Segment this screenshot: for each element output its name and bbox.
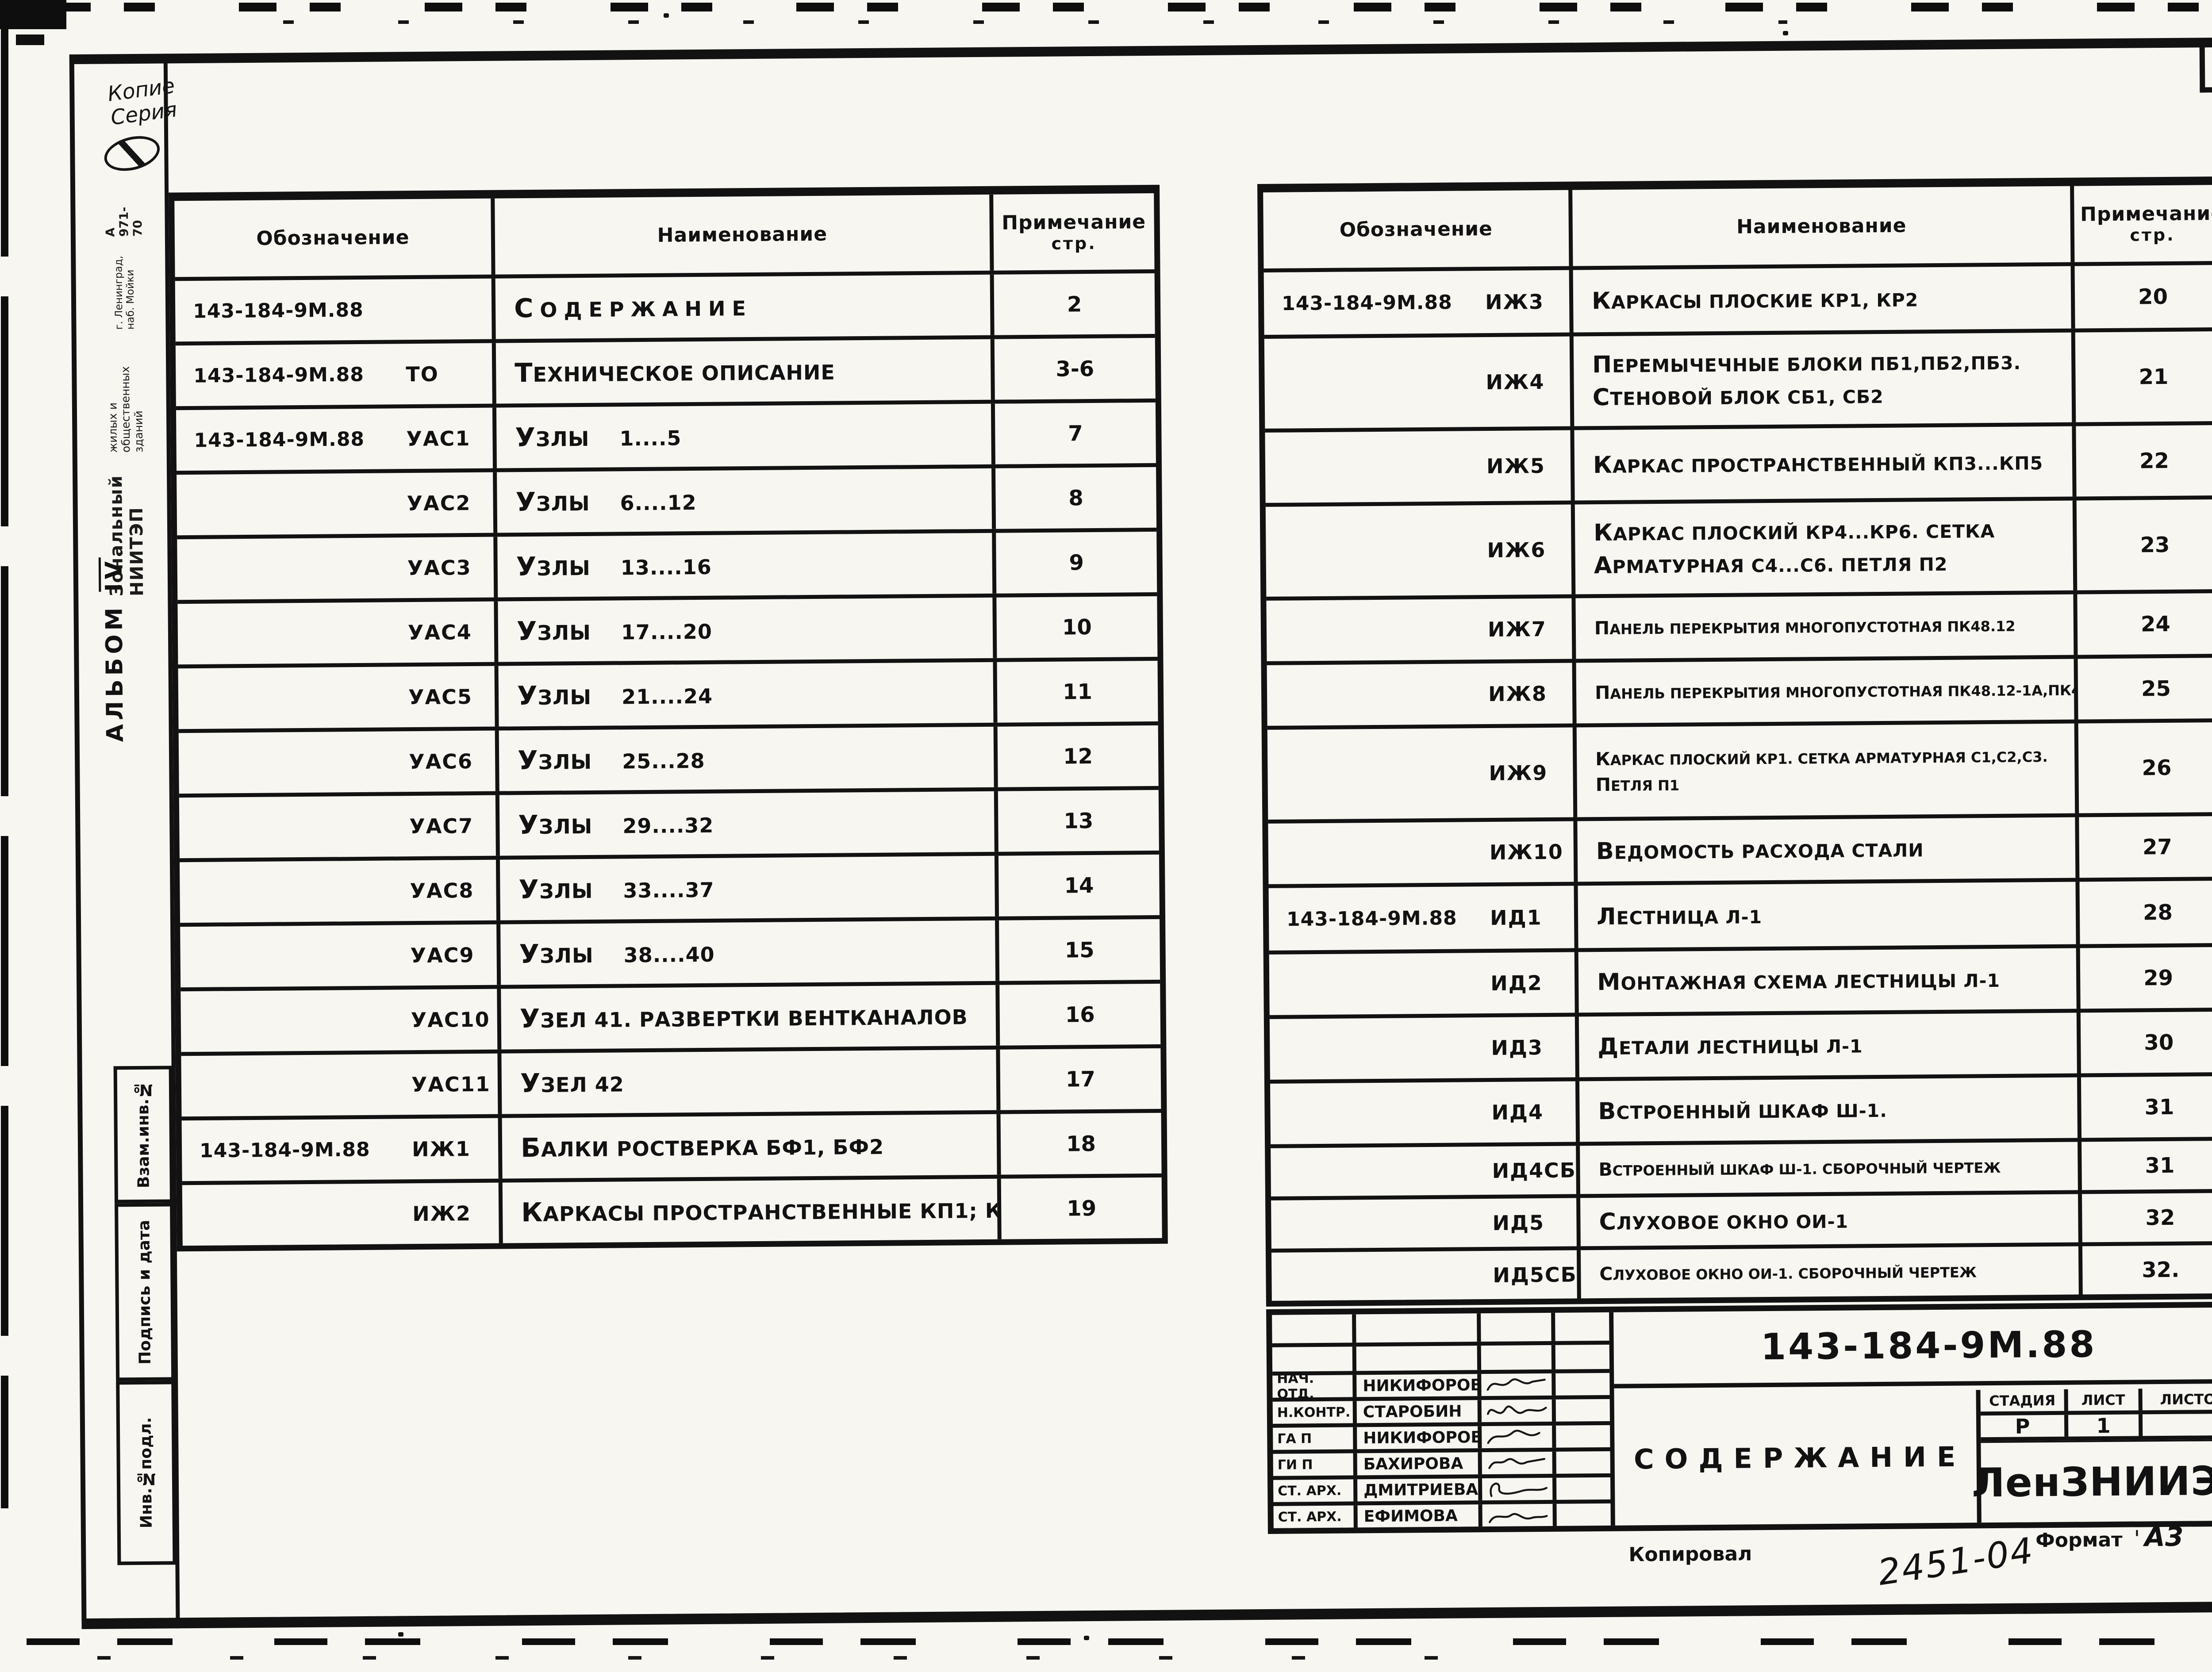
signature-mark — [1486, 1453, 1548, 1473]
designation-cell: УАС10 — [180, 989, 497, 1052]
staff-date-cell — [1556, 1477, 1610, 1500]
page-cell: 3-6 — [991, 338, 1156, 400]
page-cell: 2 — [990, 273, 1155, 335]
page-cell: 22 — [2072, 425, 2212, 497]
designation-number: 143-184-9М.88 — [193, 363, 364, 387]
designation-cell: ИЖ10 — [1268, 821, 1574, 884]
designation-code: ИЖ3 — [1485, 289, 1544, 314]
table-row: ИЖ10Ведомость расхода стали27 — [1268, 812, 2212, 884]
staff-date-cell — [1556, 1503, 1610, 1526]
table-row: ИЖ5Каркас пространственный КП3...КП522 — [1265, 421, 2212, 503]
designation-code: ИЖ10 — [1490, 840, 1563, 864]
staff-date-cell — [1555, 1373, 1609, 1396]
designation-cell: ИД4 — [1270, 1081, 1576, 1144]
name-line: Узлы 21....24 — [517, 674, 994, 714]
page-cell: 23 — [2073, 499, 2212, 591]
page-cell: 15 — [995, 919, 1160, 981]
staff-row: НАЧ. ОТД.НИКИФОРОВ — [1272, 1369, 1609, 1398]
page-cell: 20 — [2071, 265, 2212, 329]
table-row: УАС6Узлы 25...2812 — [179, 721, 1159, 794]
page-cell: 11 — [993, 661, 1158, 723]
name-line: Техническое описание — [515, 351, 991, 391]
page-cell: 26 — [2074, 722, 2212, 813]
side-cell-vzam-inv: Взам.инв.№ — [114, 1066, 173, 1203]
designation-number: 143-184-9М.88 — [193, 299, 364, 322]
staff-role-cell: НАЧ. ОТД. — [1272, 1375, 1356, 1397]
name-line: Балки ростверка БФ1, БФ2 — [521, 1126, 997, 1166]
designation-code: ИЖ4 — [1486, 369, 1544, 394]
designation-code: ИЖ9 — [1489, 760, 1548, 785]
table-row: УАС11Узел 4217 — [181, 1044, 1161, 1116]
designation-cell: ИЖ8 — [1267, 663, 1573, 726]
table-row: ИЖ8Панель перекрытия многопустотная ПК48… — [1267, 654, 2212, 726]
name-line: Каркас пространственный КП3...КП5 — [1593, 445, 2073, 481]
name-cell: Слуховое окно ОИ-1. Сборочный чертеж — [1577, 1246, 2079, 1299]
staff-role-cell: ГА П — [1273, 1427, 1357, 1450]
header-note-line1: Примечание — [1002, 211, 1146, 234]
name-line: Слуховое окно ОИ-1 — [1599, 1202, 2078, 1238]
designation-code: ИД5СБ — [1493, 1262, 1577, 1287]
name-line: Узлы 13....16 — [516, 545, 992, 585]
designation-number: 143-184-9М.88 — [194, 428, 365, 452]
designation-cell: ИД2 — [1269, 952, 1575, 1015]
designation-number: 143-184-9М.88 — [1286, 907, 1457, 931]
page-cell: 13 — [994, 790, 1159, 852]
side-cell-inv-podl: Инв.№подл. — [116, 1381, 176, 1565]
designation-code: УАС1 — [406, 426, 470, 451]
page-cell: 18 — [997, 1113, 1162, 1175]
stamp-line: А 971-70 — [104, 198, 145, 242]
table-row: УАС4Узлы 17....2010 — [177, 592, 1157, 664]
designation-code: УАС7 — [409, 814, 473, 838]
kopiroval-label: Копировал — [1628, 1542, 1752, 1566]
staff-signature-cell — [1481, 1313, 1555, 1342]
name-cell: Балки ростверка БФ1, БФ2 — [498, 1114, 997, 1179]
designation-number: 143-184-9М.88 — [1282, 291, 1452, 315]
staff-date-cell — [1555, 1345, 1609, 1369]
name-line: Каркас плоский КР1. Сетка арматурная С1,… — [1595, 743, 2074, 772]
designation-cell: ИЖ2 — [182, 1183, 499, 1246]
table-header: Обозначение Наименование Примечание стр. — [174, 193, 1154, 277]
designation-cell: ИД5 — [1271, 1198, 1577, 1248]
designation-code: УАС4 — [408, 620, 472, 644]
header-note-line2: стр. — [2130, 225, 2175, 245]
designation-cell: УАС2 — [177, 472, 493, 536]
name-line: Узлы 33....37 — [518, 868, 995, 908]
table-row: 143-184-9М.88Содержание2 — [175, 269, 1155, 341]
name-cell: Встроенный шкаф Ш-1. — [1575, 1078, 2078, 1142]
staff-role-cell: СТ. АРХ. — [1273, 1479, 1357, 1502]
name-line: Встроенный шкаф Ш-1. Сборочный чертеж — [1598, 1153, 2078, 1182]
doc-number-cell: 143-184-9М.88 — [1613, 1308, 2212, 1388]
name-line: Лестница Л-1 — [1597, 897, 2076, 933]
designation-cell: УАС11 — [181, 1054, 498, 1117]
table-row: 143-184-9М.88ИЖ1Балки ростверка БФ1, БФ2… — [182, 1109, 1162, 1181]
page-cell: 16 — [995, 984, 1160, 1046]
name-line: Узлы 1....5 — [515, 416, 991, 456]
table-row: УАС2Узлы 6....128 — [177, 463, 1156, 535]
header-note: Примечание стр. — [989, 193, 1154, 271]
designation-number: 143-184-9М.88 — [200, 1138, 370, 1162]
name-cell: Монтажная схема лестницы Л-1 — [1575, 948, 2077, 1013]
table-row: ИД4СБВстроенный шкаф Ш-1. Сборочный черт… — [1271, 1137, 2212, 1196]
staff-name-cell: НИКИФОРОВ — [1356, 1374, 1481, 1397]
staff-grid: НАЧ. ОТД.НИКИФОРОВН.КОНТР.СТАРОБИНГА ПНИ… — [1272, 1312, 1615, 1528]
name-cell: Узел 41. Развертки вентканалов — [497, 985, 996, 1050]
page-cell: 19 — [997, 1177, 1162, 1239]
page-cell: 30 — [2077, 1012, 2212, 1074]
name-cell: Каркас плоский КР4...КР6. Сеткаарматурна… — [1571, 501, 2074, 594]
album-label: АЛЬБОМ IV — [85, 508, 144, 791]
stage-header-row: СТАДИЯ ЛИСТ ЛИСТОВ — [1980, 1388, 2212, 1416]
name-line: Узлы 38....40 — [519, 932, 995, 973]
header-name: Наименование — [1568, 186, 2070, 266]
page-cell: 28 — [2075, 881, 2212, 944]
page-cell: 27 — [2075, 816, 2212, 878]
staff-name-cell — [1356, 1313, 1481, 1342]
header-name: Наименование — [491, 195, 990, 275]
staff-signature-cell — [1481, 1345, 1555, 1370]
staff-row: СТ. АРХ.ДМИТРИЕВА — [1273, 1473, 1610, 1502]
designation-cell: УАС6 — [179, 731, 495, 794]
sheets-value — [2143, 1414, 2212, 1436]
name-cell: Панель перекрытия многопустотная ПК48.12 — [1571, 594, 2074, 659]
designation-cell: ИЖ6 — [1266, 505, 1572, 597]
drawing-title-cell: СОДЕРЖАНИЕ — [1614, 1390, 1977, 1525]
staff-signature-cell — [1482, 1452, 1556, 1474]
designation-code: ИЖ2 — [412, 1201, 471, 1226]
staff-role-cell — [1272, 1346, 1356, 1371]
table-row: ИЖ4Перемычечные блоки ПБ1,ПБ2,ПБ3.Стенов… — [1264, 327, 2212, 429]
name-cell: Узлы 6....12 — [493, 468, 992, 533]
header-note-line2: стр. — [1051, 233, 1097, 253]
designation-code: ИЖ6 — [1487, 537, 1546, 562]
format-tick: ' — [2134, 1526, 2140, 1551]
designation-code: УАС11 — [411, 1072, 491, 1096]
table-row: ИД3Детали лестницы Л-130 — [1270, 1008, 2212, 1080]
sheet-value: 1 — [2068, 1414, 2143, 1436]
staff-role-cell — [1272, 1314, 1356, 1343]
name-cell: Лестница Л-1 — [1574, 882, 2076, 948]
stage-sheet-block: СТАДИЯ ЛИСТ ЛИСТОВ Р 1 ЛенЗНИИЭП — [1976, 1388, 2212, 1523]
staff-signature-cell — [1482, 1426, 1556, 1448]
designation-code: УАС2 — [407, 491, 471, 515]
header-designation: Обозначение — [174, 199, 491, 277]
name-cell: Каркас плоский КР1. Сетка арматурная С1,… — [1573, 724, 2075, 817]
name-cell: Узел 42 — [497, 1050, 996, 1114]
name-line: Узлы 6....12 — [515, 480, 992, 521]
format-word: Формат — [2035, 1529, 2123, 1552]
page-cell: 32. — [2078, 1245, 2212, 1295]
table-row: УАС9Узлы 38....4015 — [180, 915, 1160, 987]
name-cell: Техническое описание — [492, 339, 991, 404]
name-cell: Детали лестницы Л-1 — [1575, 1013, 2077, 1078]
stage-value: Р — [1981, 1415, 2068, 1438]
name-cell: Каркас пространственный КП3...КП5 — [1570, 426, 2072, 501]
designation-code: УАС5 — [408, 685, 472, 709]
staff-name-cell: СТАРОБИН — [1357, 1400, 1482, 1423]
staff-row: ГИ ПБАХИРОВА — [1273, 1447, 1610, 1476]
header-note: Примечание стр. — [2070, 185, 2212, 262]
staff-empty-row — [1272, 1312, 1609, 1343]
table-row: ИД5СБСлуховое окно ОИ-1. Сборочный черте… — [1271, 1241, 2212, 1301]
signature-mark — [1486, 1401, 1548, 1421]
name-cell: Каркасы плоские КР1, КР2 — [1569, 266, 2071, 333]
designation-cell: УАС3 — [177, 537, 494, 600]
name-cell: Ведомость расхода стали — [1573, 817, 2075, 882]
staff-row: ГА ПНИКИФОРОВ — [1273, 1421, 1610, 1450]
staff-row: СТ. АРХ.ЕФИМОВА — [1273, 1499, 1610, 1528]
name-line: Каркасы пространственные КП1; КП2 — [521, 1191, 998, 1231]
staff-name-cell: ЕФИМОВА — [1357, 1504, 1482, 1527]
designation-code: ИЖ1 — [412, 1137, 471, 1161]
designation-code: ИД4СБ — [1492, 1158, 1576, 1182]
staff-date-cell — [1556, 1451, 1610, 1474]
sheet-label: ЛИСТ — [2068, 1388, 2142, 1411]
name-cell: Узлы 29....32 — [495, 791, 995, 856]
name-line: Каркас плоский КР4...КР6. Сетка — [1594, 513, 2073, 549]
name-line: Панель перекрытия многопустотная ПК48.12… — [1595, 676, 2074, 706]
designation-code: УАС10 — [411, 1007, 490, 1032]
name-cell: Узлы 38....40 — [496, 920, 995, 985]
page-cell: 12 — [994, 725, 1159, 787]
staff-role-cell: Н.КОНТР. — [1273, 1401, 1357, 1423]
signature-mark — [1486, 1427, 1548, 1447]
name-line: Узлы 25...28 — [518, 739, 994, 779]
page-cell: 7 — [991, 403, 1156, 464]
staff-date-cell — [1556, 1425, 1610, 1448]
page-cell: 8 — [991, 467, 1156, 529]
album-roman-numeral: IV — [101, 557, 128, 591]
designation-code: УАС8 — [410, 878, 474, 903]
name-line: Панель перекрытия многопустотная ПК48.12 — [1594, 612, 2074, 641]
header-note-line1: Примечание — [2080, 202, 2212, 226]
signature-mark — [1486, 1375, 1548, 1395]
name-cell: Встроенный шкаф Ш-1. Сборочный чертеж — [1576, 1142, 2078, 1194]
designation-cell: 143-184-9М.88 — [175, 279, 492, 342]
stage-value-row: Р 1 — [1981, 1414, 2212, 1442]
designation-cell: ИЖ7 — [1266, 598, 1572, 661]
staff-name-cell: ДМИТРИЕВА — [1357, 1478, 1482, 1501]
name-line: Встроенный шкаф Ш-1. — [1598, 1091, 2078, 1127]
signature-mark — [1486, 1479, 1548, 1499]
designation-cell: ИЖ5 — [1265, 430, 1571, 503]
name-line: Перемычечные блоки ПБ1,ПБ2,ПБ3. — [1592, 345, 2072, 381]
signature-mark — [1486, 1505, 1548, 1525]
designation-code: ИД4 — [1491, 1100, 1544, 1124]
name-line: Детали лестницы Л-1 — [1598, 1027, 2077, 1063]
stage-label: СТАДИЯ — [1980, 1389, 2068, 1412]
name-cell: Узлы 1....5 — [492, 404, 991, 468]
table-row: ИД2Монтажная схема лестницы Л-129 — [1269, 943, 2212, 1015]
stamp-line: г. Ленинград, наб. Мойки — [113, 241, 137, 333]
page-cell: 25 — [2074, 658, 2212, 720]
designation-code: УАС9 — [410, 943, 474, 967]
sheet: 2 Копие Серия Зональный НИИТЭП жилых и о… — [0, 0, 2212, 1672]
designation-code: УАС3 — [407, 556, 472, 580]
designation-code: ИД5 — [1492, 1211, 1544, 1235]
page-cell: 31 — [2077, 1076, 2212, 1138]
name-line: Слуховое окно ОИ-1. Сборочный чертеж — [1599, 1258, 2078, 1287]
sheet-number-box: 2 — [2200, 41, 2212, 92]
page-cell: 29 — [2076, 947, 2212, 1009]
table-row: УАС8Узлы 33....3714 — [180, 851, 1160, 923]
page-cell: 14 — [995, 855, 1160, 917]
staff-name-cell: НИКИФОРОВ — [1357, 1426, 1482, 1449]
designation-code: ИЖ7 — [1488, 617, 1547, 641]
staff-role-cell: ГИ П — [1273, 1453, 1357, 1476]
name-cell: Узлы 25...28 — [495, 727, 994, 791]
table-row: ИЖ7Панель перекрытия многопустотная ПК48… — [1266, 589, 2212, 661]
designation-cell: 143-184-9М.88ИЖ3 — [1264, 270, 1570, 335]
designation-cell: ИД4СБ — [1271, 1146, 1576, 1196]
name-line: Узел 42 — [520, 1062, 997, 1102]
designation-cell: ИД3 — [1270, 1016, 1575, 1079]
designation-cell: УАС7 — [179, 795, 496, 859]
designation-code: ИЖ5 — [1486, 453, 1545, 478]
name-cell: Перемычечные блоки ПБ1,ПБ2,ПБ3.Стеновой … — [1570, 333, 2072, 426]
designation-cell: ИЖ4 — [1264, 337, 1571, 429]
table-header: Обозначение Наименование Примечание стр. — [1263, 185, 2212, 268]
name-line: Монтажная схема лестницы Л-1 — [1597, 962, 2077, 998]
table-row: 143-184-9М.88ИД1Лестница Л-128 — [1268, 877, 2212, 951]
name-line: Петля П1 — [1595, 768, 2074, 798]
name-line: Узлы 29....32 — [518, 803, 995, 844]
designation-cell: 143-184-9М.88УАС1 — [176, 408, 493, 471]
designation-cell: УАС8 — [180, 860, 496, 923]
page-cell: 32 — [2078, 1193, 2212, 1242]
designation-code: ИЖ8 — [1488, 681, 1547, 706]
designation-code: ИД3 — [1491, 1035, 1543, 1060]
table-row: 143-184-9М.88ИЖ3Каркасы плоские КР1, КР2… — [1264, 261, 2212, 335]
page-cell: 10 — [992, 596, 1157, 658]
staff-date-cell — [1555, 1312, 1609, 1341]
title-block: НАЧ. ОТД.НИКИФОРОВН.КОНТР.СТАРОБИНГА ПНИ… — [1266, 1302, 2212, 1534]
designation-code: УАС6 — [409, 749, 473, 774]
designation-cell: 143-184-9М.88ИЖ1 — [182, 1118, 499, 1181]
designation-cell: 143-184-9М.88ТО — [176, 343, 492, 406]
staff-name-cell: БАХИРОВА — [1357, 1452, 1482, 1475]
page-cell: 31 — [2078, 1141, 2212, 1190]
name-cell: Каркасы пространственные КП1; КП2 — [499, 1179, 998, 1243]
staff-signature-cell — [1482, 1400, 1556, 1422]
stamp-line: жилых и общественных зданий — [106, 333, 145, 456]
table-row: ИЖ9Каркас плоский КР1. Сетка арматурная … — [1267, 718, 2212, 820]
name-cell: Панель перекрытия многопустотная ПК48.12… — [1572, 659, 2074, 724]
side-label: Взам.инв.№ — [134, 1081, 153, 1189]
name-cell: Узлы 33....37 — [496, 856, 995, 920]
table-row: УАС5Узлы 21....2411 — [178, 657, 1158, 729]
sheets-label: ЛИСТОВ — [2142, 1388, 2212, 1411]
staff-signature-cell — [1481, 1373, 1555, 1396]
table-row: УАС10Узел 41. Развертки вентканалов16 — [180, 980, 1160, 1052]
table-body: 143-184-9М.88ИЖ3Каркасы плоские КР1, КР2… — [1264, 261, 2212, 1301]
table-row: ИД4Встроенный шкаф Ш-1.31 — [1270, 1072, 2212, 1144]
staff-name-cell — [1356, 1346, 1481, 1371]
designation-cell: 143-184-9М.88ИД1 — [1269, 886, 1575, 950]
staff-date-cell — [1556, 1399, 1610, 1422]
page-cell: 24 — [2073, 593, 2212, 655]
name-line: Ведомость расхода стали — [1596, 831, 2076, 867]
name-line: Каркасы плоские КР1, КР2 — [1592, 281, 2071, 317]
staff-empty-row — [1272, 1341, 1609, 1372]
table-row: УАС7Узлы 29....3213 — [179, 786, 1159, 858]
contents-table-left: Обозначение Наименование Примечание стр.… — [169, 185, 1168, 1252]
staff-signature-cell — [1482, 1504, 1556, 1526]
name-cell: Содержание — [492, 275, 991, 339]
name-line: Стеновой блок СБ1, СБ2 — [1593, 377, 2072, 414]
designation-cell: ИД5СБ — [1271, 1250, 1577, 1300]
name-cell: Узлы 21....24 — [495, 662, 994, 727]
name-cell: Узлы 13....16 — [493, 533, 992, 598]
album-word: АЛЬБОМ — [101, 603, 128, 742]
designation-code: ИД2 — [1490, 971, 1543, 995]
table-row: ИЖ2Каркасы пространственные КП1; КП219 — [182, 1173, 1162, 1246]
name-cell: Узлы 17....20 — [494, 598, 993, 662]
name-cell: Слуховое окно ОИ-1 — [1576, 1194, 2078, 1246]
organization-name: ЛенЗНИИЭП — [1981, 1439, 2212, 1523]
table-row: УАС3Узлы 13....169 — [177, 528, 1157, 600]
designation-cell: УАС9 — [180, 924, 497, 988]
table-row: ИД5Слуховое окно ОИ-132 — [1271, 1189, 2212, 1249]
side-label: Инв.№подл. — [137, 1417, 156, 1529]
header-designation: Обозначение — [1263, 190, 1569, 268]
staff-role-cell: СТ. АРХ. — [1274, 1505, 1358, 1528]
page-cell: 17 — [996, 1048, 1161, 1110]
designation-code: ТО — [406, 362, 439, 386]
designation-cell: ИЖ9 — [1267, 727, 1574, 819]
name-line: Узлы 17....20 — [517, 610, 993, 650]
designation-code: ИД1 — [1490, 905, 1542, 930]
staff-signature-cell — [1482, 1478, 1556, 1500]
page-cell: 21 — [2071, 331, 2212, 422]
name-line: Содержание — [514, 287, 991, 327]
page-cell: 9 — [992, 532, 1157, 594]
side-cell-podpis-data: Подпись и дата — [115, 1203, 175, 1381]
designation-cell: УАС5 — [178, 666, 495, 729]
table-row: ИЖ6Каркас плоский КР4...КР6. Сеткаармату… — [1266, 495, 2212, 597]
designation-cell: УАС4 — [177, 602, 494, 665]
format-label: Формат'А3 — [2035, 1522, 2184, 1554]
table-row: 143-184-9М.88ТОТехническое описание3-6 — [176, 334, 1156, 406]
side-label: Подпись и дата — [135, 1219, 154, 1364]
format-value: А3 — [2144, 1522, 2184, 1553]
name-line: арматурная С4...С6. Петля П2 — [1594, 545, 2074, 582]
contents-table-right: Обозначение Наименование Примечание стр.… — [1257, 176, 2212, 1307]
table-body: 143-184-9М.88Содержание2143-184-9М.88ТОТ… — [175, 269, 1162, 1246]
table-row: 143-184-9М.88УАС1Узлы 1....57 — [176, 399, 1156, 471]
name-line: Узел 41. Развертки вентканалов — [519, 997, 996, 1037]
